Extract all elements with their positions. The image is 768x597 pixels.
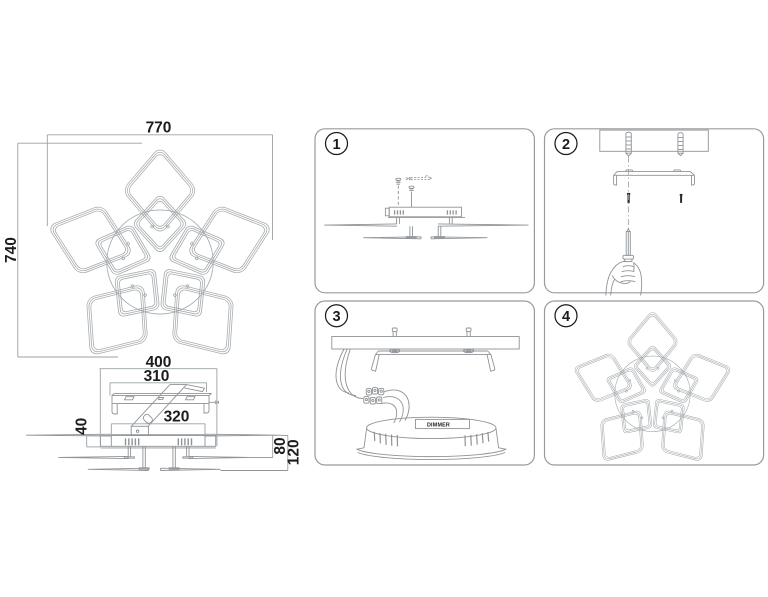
svg-text:320: 320 [164,409,190,426]
svg-text:DIMMER: DIMMER [427,422,450,428]
svg-text:1: 1 [332,137,340,153]
svg-text:120: 120 [286,439,303,465]
svg-text:4: 4 [562,309,570,325]
svg-text:770: 770 [146,120,172,137]
svg-text:40: 40 [74,418,91,435]
svg-text:740: 740 [3,237,20,263]
svg-text:310: 310 [144,368,170,385]
svg-text:3: 3 [332,309,340,325]
svg-text:2: 2 [562,137,570,153]
